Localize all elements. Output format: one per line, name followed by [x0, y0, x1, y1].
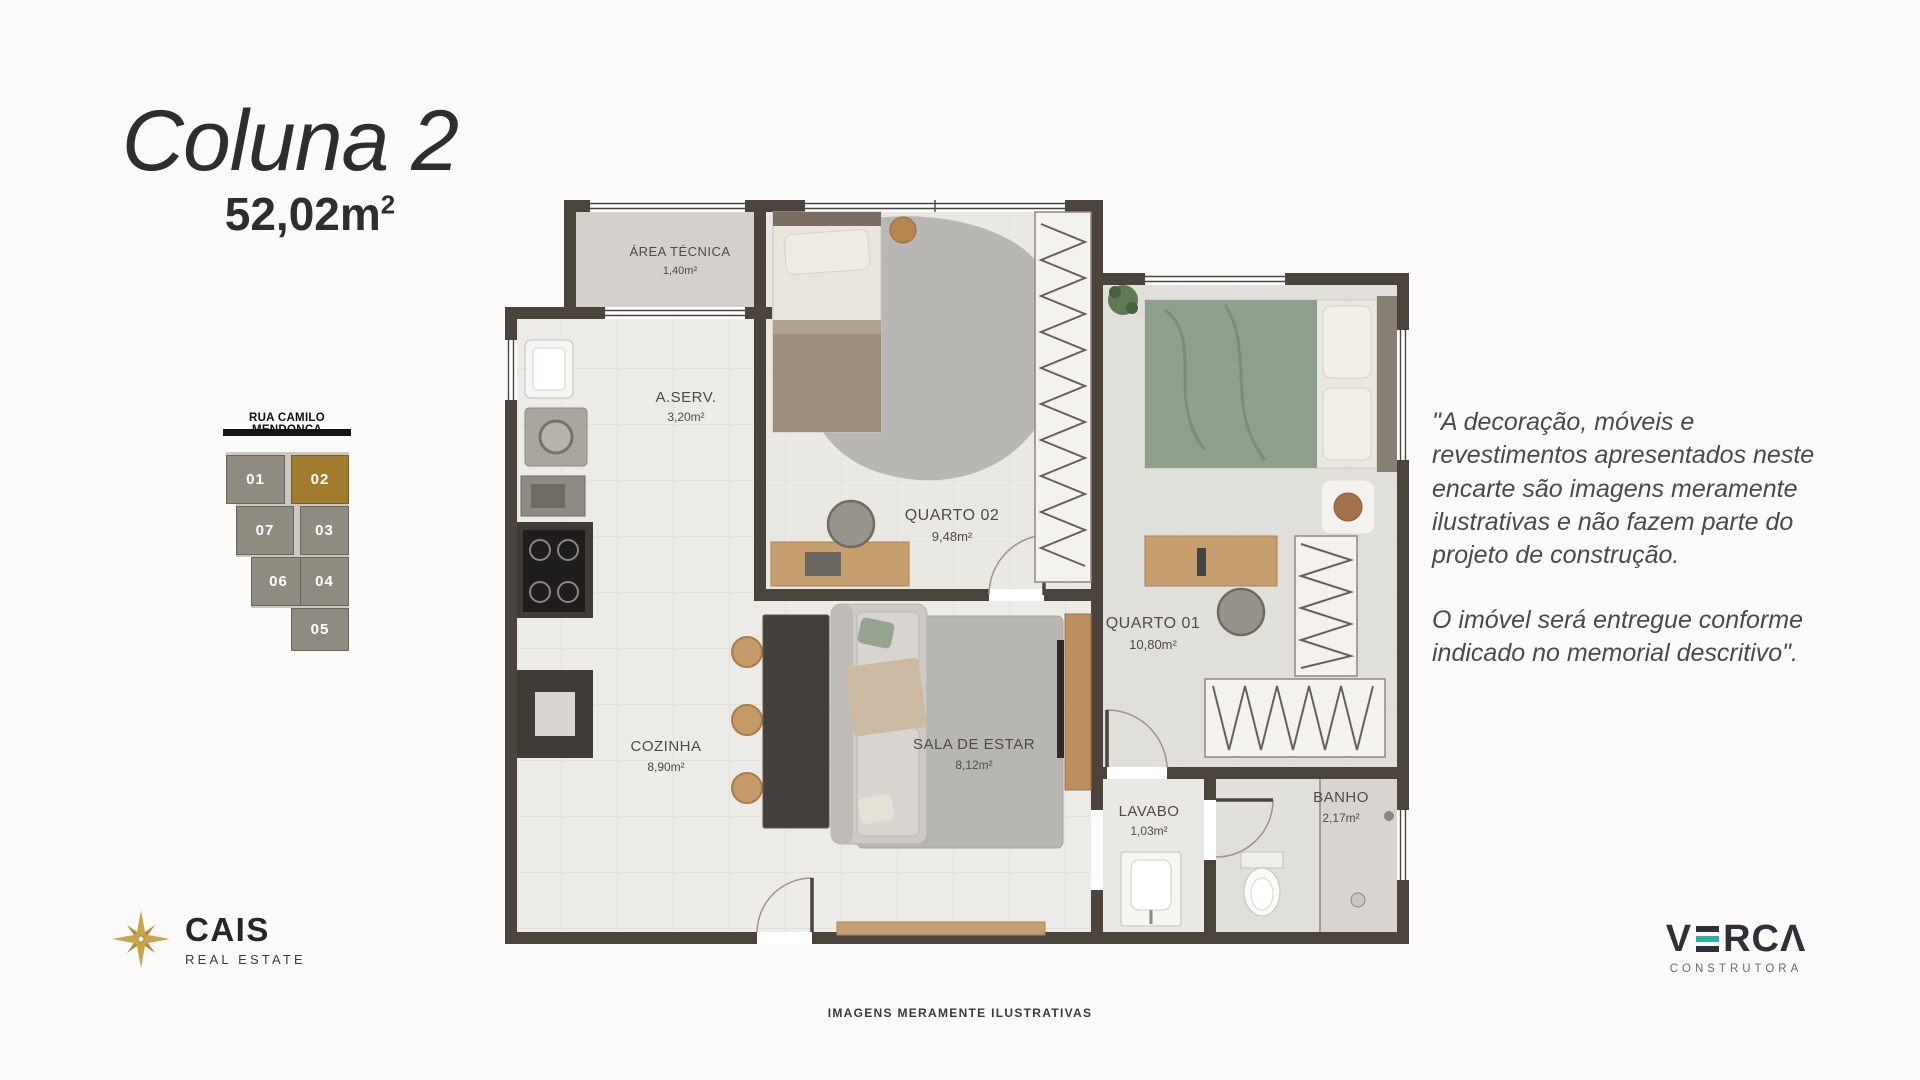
- floor-area-tecnica: [576, 212, 754, 307]
- monitor: [1197, 548, 1206, 576]
- bed-headboard: [1377, 296, 1397, 472]
- disclaimer-paragraph-2: O imóvel será entregue conforme indicado…: [1432, 604, 1830, 671]
- unit-total-area-sup: 2: [381, 190, 395, 220]
- toilet-tank: [1241, 852, 1283, 868]
- sideboard: [837, 922, 1045, 935]
- unit-block-07: 07: [236, 506, 294, 555]
- stool: [732, 637, 762, 667]
- unit-total-area: 52,02m2: [100, 187, 480, 241]
- side-table: [890, 217, 916, 243]
- unit-block-01: 01: [226, 455, 285, 504]
- title-block: Coluna 2 52,02m2: [100, 92, 480, 241]
- area-banho: 2,17m²: [1322, 811, 1359, 825]
- washer-door: [540, 421, 572, 453]
- stool: [732, 773, 762, 803]
- microwave-window: [531, 484, 565, 508]
- bed-headboard: [773, 212, 881, 226]
- desk-chair: [1218, 589, 1264, 635]
- cais-subtitle: REAL ESTATE: [185, 952, 306, 967]
- plant-leaf: [1126, 302, 1138, 314]
- blanket-fold: [773, 320, 881, 334]
- area-quarto01: 10,80m²: [1129, 637, 1177, 652]
- laundry-tank-basin: [533, 348, 565, 390]
- sink-basin: [1131, 860, 1171, 910]
- toilet-seat: [1251, 878, 1273, 910]
- floor-plan: ÁREA TÉCNICA 1,40m² A.SERV. 3,20m² QUART…: [505, 200, 1410, 950]
- cais-logo: CAIS REAL ESTATE: [112, 910, 306, 968]
- label-quarto02: QUARTO 02: [905, 507, 1000, 524]
- kitchen-island: [763, 615, 829, 828]
- label-aserv: A.SERV.: [655, 389, 716, 406]
- unit-location-map: RUA CAMILO MENDONÇA 01 02 07 03 06 04 05: [222, 412, 352, 654]
- unit-block-06: 06: [251, 557, 306, 606]
- verca-subtitle: CONSTRUTORA: [1652, 963, 1820, 975]
- tv-console: [1065, 614, 1091, 790]
- shower-drain: [1351, 893, 1365, 907]
- verca-letter-v: V: [1666, 920, 1692, 958]
- area-aserv: 3,20m²: [667, 410, 704, 424]
- lavabo-fixtures: [1121, 852, 1181, 926]
- area-sala: 8,12m²: [955, 758, 992, 772]
- area-quarto02: 9,48m²: [932, 529, 973, 544]
- label-sala: SALA DE ESTAR: [913, 736, 1035, 753]
- sofa-back: [831, 604, 853, 844]
- label-banho: BANHO: [1313, 789, 1369, 806]
- unit-total-area-value: 52,02m: [225, 188, 381, 240]
- duvet-green: [1145, 300, 1317, 468]
- desk: [1145, 536, 1277, 586]
- label-quarto01: QUARTO 01: [1106, 615, 1201, 632]
- tv-screen: [1057, 640, 1064, 758]
- laptop: [805, 552, 841, 576]
- compass-rose-icon: [112, 910, 170, 968]
- label-area-tecnica: ÁREA TÉCNICA: [629, 244, 730, 259]
- label-lavabo: LAVABO: [1119, 803, 1180, 820]
- label-cozinha: COZINHA: [631, 738, 702, 755]
- throw-blanket: [844, 657, 927, 737]
- area-lavabo: 1,03m²: [1130, 824, 1167, 838]
- verca-e-bars-icon: [1696, 926, 1719, 952]
- disclaimer-paragraph-1: "A decoração, móveis e revestimentos apr…: [1432, 406, 1830, 572]
- unit-block-04: 04: [300, 557, 349, 606]
- pillow: [1323, 306, 1371, 378]
- cais-wordmark: CAIS: [185, 911, 306, 949]
- verca-letters-rca: RCΛ: [1723, 920, 1806, 958]
- bed-blanket: [773, 320, 881, 432]
- pillow: [1323, 388, 1371, 460]
- disclaimer-text: "A decoração, móveis e revestimentos apr…: [1432, 406, 1830, 670]
- verca-logo: V RCΛ CONSTRUTORA: [1652, 920, 1820, 975]
- bed-pillow: [784, 229, 871, 275]
- shower-head: [1384, 811, 1394, 821]
- stool: [732, 705, 762, 735]
- page-title: Coluna 2: [100, 92, 480, 191]
- unit-block-03: 03: [300, 506, 349, 555]
- side-table-round: [1334, 493, 1362, 521]
- unit-block-05: 05: [291, 608, 349, 651]
- dishwasher: [535, 692, 575, 736]
- plant-leaf: [1109, 286, 1121, 298]
- footer-note: IMAGENS MERAMENTE ILUSTRATIVAS: [828, 1006, 1093, 1020]
- unit-block-02-highlighted: 02: [291, 455, 349, 504]
- area-cozinha: 8,90m²: [647, 760, 684, 774]
- street-bar: [223, 429, 351, 436]
- desk-chair: [828, 501, 874, 547]
- area-area-tecnica: 1,40m²: [663, 265, 698, 277]
- wardrobe: [1035, 212, 1091, 582]
